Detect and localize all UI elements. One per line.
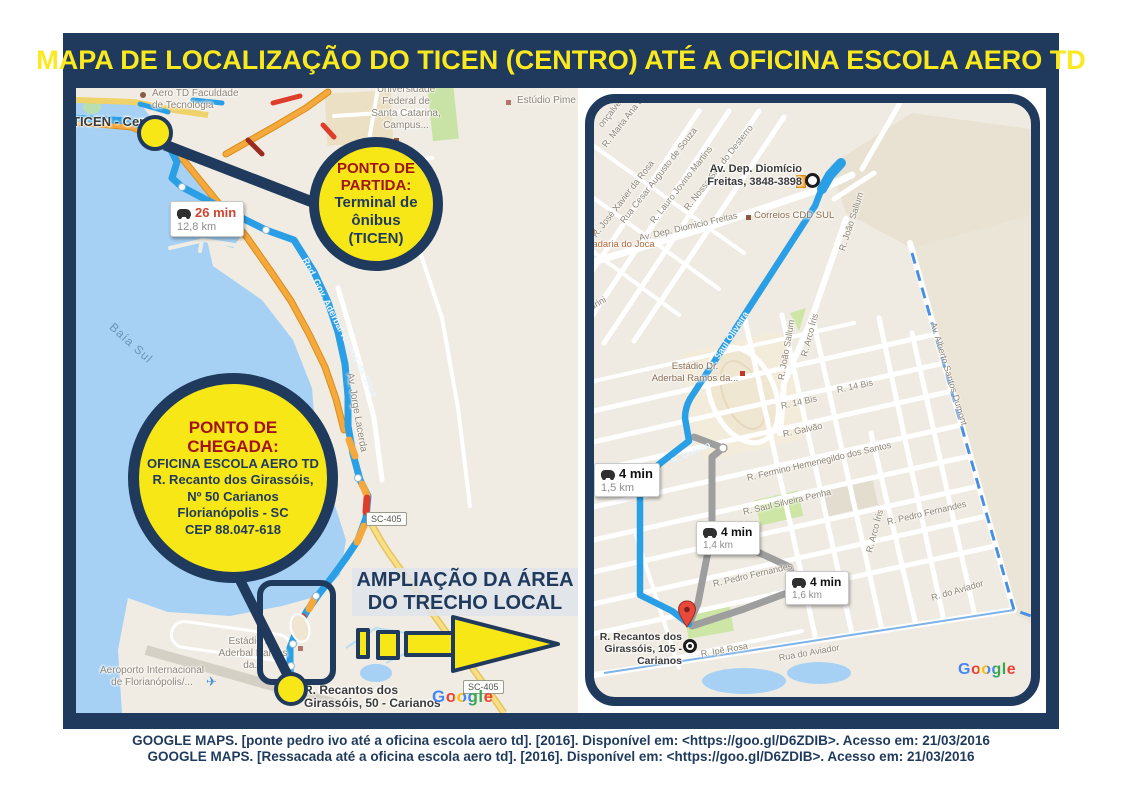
route-option-distance: 1,5 km bbox=[601, 482, 653, 494]
citations: GOOGLE MAPS. [ponte pedro ivo até a ofic… bbox=[63, 733, 1059, 765]
title-bar: MAPA DE LOCALIZAÇÃO DO TICEN (CENTRO) AT… bbox=[63, 33, 1059, 88]
callout-chegada-heading: PONTO DE CHEGADA: bbox=[187, 418, 279, 456]
poi-correios: Correios CDD SUL bbox=[754, 210, 834, 222]
zoom-arrow bbox=[352, 612, 564, 676]
car-icon bbox=[601, 470, 615, 478]
route-start-marker bbox=[805, 173, 820, 188]
detail-panel: onçalves R. Maria Ana Bittencourt R. Jos… bbox=[578, 88, 1046, 713]
detail-map: onçalves R. Maria Ana Bittencourt R. Jos… bbox=[585, 94, 1040, 706]
route-option-distance: 1,6 km bbox=[792, 590, 841, 601]
route-option-2: 4 min 1,4 km bbox=[696, 521, 760, 555]
callout-partida-body: Terminal de ônibus (TICEN) bbox=[334, 194, 417, 248]
citation-line-2: GOOGLE MAPS. [Ressacada até a oficina es… bbox=[63, 749, 1059, 765]
route-option-1: 4 min 1,5 km bbox=[594, 463, 660, 497]
poi-estadio: Estádio Dr. Aderbal Ramos da... bbox=[650, 361, 740, 385]
route-option-duration: 4 min bbox=[721, 525, 752, 539]
car-icon bbox=[703, 528, 717, 536]
route-option-duration: 4 min bbox=[810, 575, 841, 589]
citation-line-1: GOOGLE MAPS. [ponte pedro ivo até a ofic… bbox=[63, 733, 1059, 749]
end-address-label: R. Recantos dos Girassóis, 105 - Cariano… bbox=[585, 631, 682, 667]
start-address-label: Av. Dep. Diomício Freitas, 3848-3898 bbox=[690, 163, 802, 189]
route-end-marker bbox=[683, 639, 697, 653]
callout-partida: PONTO DE PARTIDA: Terminal de ônibus (TI… bbox=[309, 137, 443, 271]
overview-map: Aero TD Faculdade de Tecnologia Universi… bbox=[76, 88, 578, 713]
estadio-icon bbox=[740, 371, 745, 376]
route-option-3: 4 min 1,6 km bbox=[785, 571, 849, 605]
callout-chegada: PONTO DE CHEGADA: OFICINA ESCOLA AERO TD… bbox=[128, 373, 338, 583]
ticen-marker bbox=[137, 115, 173, 151]
page-title: MAPA DE LOCALIZAÇÃO DO TICEN (CENTRO) AT… bbox=[36, 45, 1085, 76]
route-option-distance: 1,4 km bbox=[703, 540, 752, 551]
google-logo: Google bbox=[958, 661, 1016, 679]
padaria-icon bbox=[590, 229, 595, 234]
route-option-duration: 4 min bbox=[619, 466, 653, 481]
car-icon bbox=[792, 578, 806, 586]
callout-chegada-body: OFICINA ESCOLA AERO TD R. Recanto dos Gi… bbox=[147, 456, 319, 539]
map-frame: MAPA DE LOCALIZAÇÃO DO TICEN (CENTRO) AT… bbox=[63, 33, 1059, 729]
callout-partida-heading: PONTO DE PARTIDA: bbox=[337, 160, 415, 194]
ampliacao-panel: AMPLIAÇÃO DA ÁREA DO TRECHO LOCAL bbox=[352, 568, 578, 616]
ampliacao-label: AMPLIAÇÃO DA ÁREA DO TRECHO LOCAL bbox=[356, 569, 573, 615]
poi-padaria: Padaria do Joca bbox=[586, 239, 655, 251]
destination-marker bbox=[274, 672, 308, 706]
correios-icon bbox=[746, 215, 751, 220]
